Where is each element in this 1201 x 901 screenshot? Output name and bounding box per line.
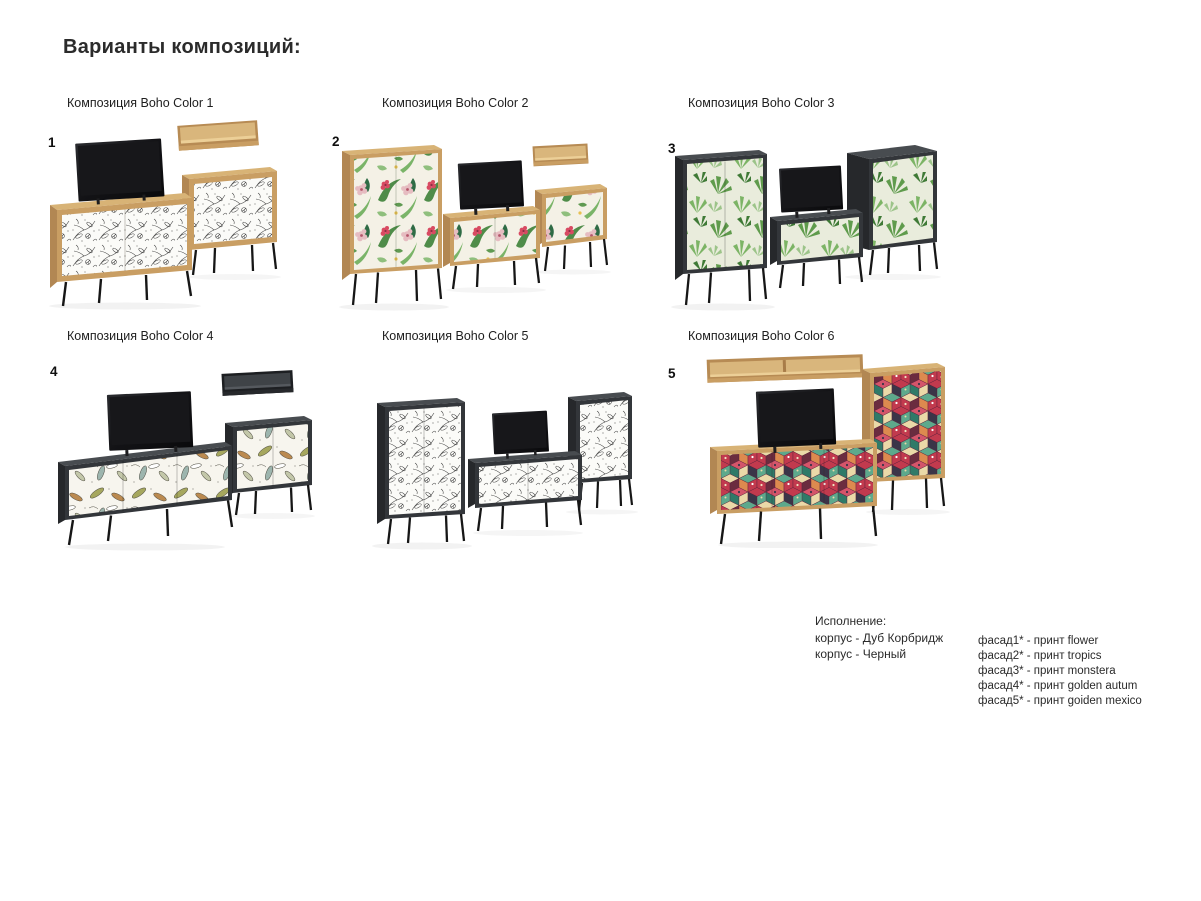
- tv-stand: [468, 451, 582, 531]
- wall-shelf: [533, 144, 589, 167]
- sideboard: [50, 193, 192, 306]
- composition-5-label: Композиция Boho Color 5: [382, 329, 528, 343]
- wall-shelf: [707, 354, 864, 382]
- floor-shadow: [189, 274, 281, 280]
- floor-shadow: [535, 270, 611, 275]
- floor-shadow: [446, 287, 546, 293]
- tv: [107, 391, 194, 457]
- facade-line: фасад4* - принт golden autum: [978, 679, 1142, 694]
- cabinet: [225, 416, 312, 515]
- floor-shadow: [845, 274, 941, 280]
- facade-legend: фасад1* - принт flower фасад2* - принт t…: [978, 634, 1142, 709]
- sideboard: [58, 442, 232, 545]
- composition-1-label: Композиция Boho Color 1: [67, 96, 213, 110]
- metal-legs: [388, 514, 464, 544]
- facade-line: фасад1* - принт flower: [978, 634, 1142, 649]
- facade-line: фасад3* - принт monstera: [978, 664, 1142, 679]
- composition-6-illustration: [658, 348, 958, 548]
- catalog-page: Варианты композиций: Композиция Boho Col…: [0, 0, 1201, 901]
- floor-shadow: [49, 303, 201, 310]
- finish-heading: Исполнение:: [815, 613, 943, 630]
- facade-line: фасад5* - принт goiden mexico: [978, 694, 1142, 709]
- korpus-line: корпус - Черный: [815, 646, 943, 663]
- floor-shadow: [231, 513, 315, 519]
- korpus-line: корпус - Дуб Корбридж: [815, 630, 943, 647]
- composition-4-illustration: [45, 358, 345, 563]
- tall-cabinet: [377, 398, 465, 544]
- tall-cabinet: [342, 145, 442, 305]
- composition-2-illustration: [328, 128, 623, 313]
- cabinet: [182, 167, 277, 275]
- metal-legs: [686, 268, 766, 305]
- composition-2-label: Композиция Boho Color 2: [382, 96, 528, 110]
- floor-shadow: [866, 509, 950, 515]
- wall-shelf: [177, 120, 259, 151]
- composition-6-label: Композиция Boho Color 6: [688, 329, 834, 343]
- composition-5-illustration: [358, 383, 658, 573]
- tv: [779, 165, 844, 218]
- wall-shelf: [221, 370, 293, 396]
- floor-shadow: [339, 304, 449, 311]
- floor-shadow: [473, 530, 583, 536]
- tv: [75, 138, 165, 205]
- tall-cabinet: [675, 150, 767, 305]
- composition-3-label: Композиция Boho Color 3: [688, 96, 834, 110]
- tv-stand: [443, 206, 540, 289]
- page-title: Варианты композиций:: [63, 36, 301, 59]
- finish-legend: Исполнение: корпус - Дуб Корбридж корпус…: [815, 613, 943, 663]
- tv: [492, 411, 549, 460]
- facade-line: фасад2* - принт tropics: [978, 649, 1142, 664]
- sideboard: [710, 439, 877, 544]
- metal-legs: [579, 479, 632, 510]
- metal-legs: [353, 269, 441, 306]
- cabinet: [535, 184, 607, 271]
- tv: [756, 388, 837, 453]
- composition-3-illustration: [663, 128, 948, 313]
- floor-shadow: [65, 544, 225, 551]
- floor-shadow: [566, 510, 638, 515]
- composition-1-illustration: [45, 113, 320, 313]
- floor-shadow: [718, 542, 878, 549]
- composition-4-label: Композиция Boho Color 4: [67, 329, 213, 343]
- tv: [458, 160, 525, 215]
- metal-legs: [873, 478, 944, 512]
